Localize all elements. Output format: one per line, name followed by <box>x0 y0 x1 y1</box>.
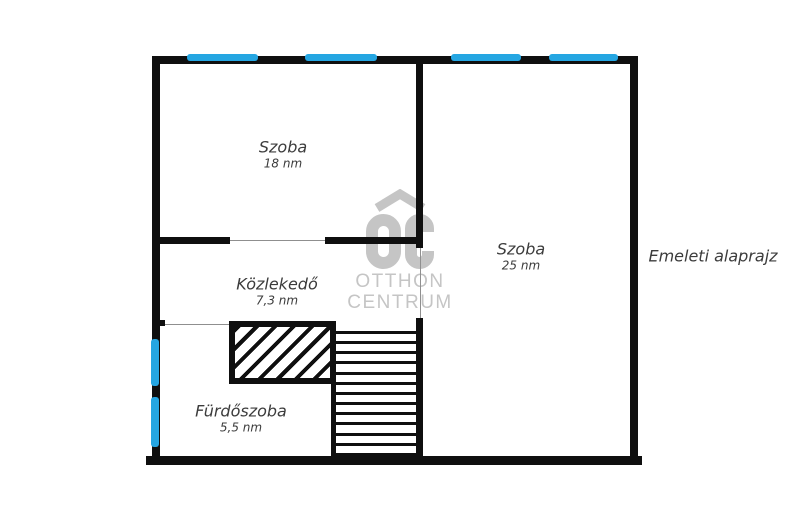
stair-tread <box>336 412 416 415</box>
stair-tread <box>336 422 416 425</box>
plan-title: Emeleti alaprajz <box>648 247 777 266</box>
room-label-furdoszoba: Fürdőszoba 5,5 nm <box>195 403 287 436</box>
floor-plan: OTTHON CENTRUM Szoba 18 nm Szoba 25 nm K… <box>0 0 800 508</box>
room-area: 18 nm <box>259 157 307 172</box>
otthon-centrum-logo-icon <box>364 189 436 271</box>
hatched-void <box>229 321 336 384</box>
window <box>549 54 618 61</box>
room-area: 5,5 nm <box>195 421 287 436</box>
room-area: 25 nm <box>497 259 545 274</box>
door-opening-line-szoba25 <box>420 248 421 320</box>
stair-tread <box>336 392 416 395</box>
watermark-line2: CENTRUM <box>347 292 453 313</box>
room-name: Fürdőszoba <box>195 403 287 421</box>
stair-tread <box>336 351 416 354</box>
stair-treads <box>336 331 416 456</box>
watermark-line1: OTTHON <box>355 271 444 292</box>
interior-wall-vertical-lower <box>416 318 423 456</box>
stair-tread <box>336 382 416 385</box>
interior-wall-szoba18-left <box>152 237 230 244</box>
stair-tread <box>336 372 416 375</box>
window <box>305 54 377 61</box>
room-name: Közlekedő <box>236 276 317 294</box>
window <box>451 54 521 61</box>
outer-wall-left <box>152 56 160 456</box>
outer-wall-bottom <box>146 456 642 465</box>
stair-tread <box>336 341 416 344</box>
room-label-kozlekedo: Közlekedő 7,3 nm <box>236 276 317 309</box>
stair-tread <box>336 433 416 436</box>
outer-wall-right <box>630 56 638 456</box>
stair-tread <box>336 402 416 405</box>
window <box>151 339 159 386</box>
room-name: Szoba <box>497 241 545 259</box>
room-label-szoba-25: Szoba 25 nm <box>497 241 545 274</box>
door-opening-line-bathroom <box>163 324 229 325</box>
interior-wall-szoba18-right <box>325 237 423 244</box>
otthon-centrum-watermark: OTTHON CENTRUM <box>330 189 470 313</box>
stair-tread <box>336 453 416 456</box>
room-name: Szoba <box>259 139 307 157</box>
stair-tread <box>336 331 416 334</box>
window <box>151 397 159 447</box>
stair-tread <box>336 361 416 364</box>
room-label-szoba-18: Szoba 18 nm <box>259 139 307 172</box>
door-opening-line-szoba18 <box>230 240 325 241</box>
interior-wall-bathroom-stub <box>152 320 165 326</box>
stair-tread <box>336 443 416 446</box>
interior-wall-vertical-upper <box>416 56 423 248</box>
room-area: 7,3 nm <box>236 294 317 309</box>
window <box>187 54 258 61</box>
